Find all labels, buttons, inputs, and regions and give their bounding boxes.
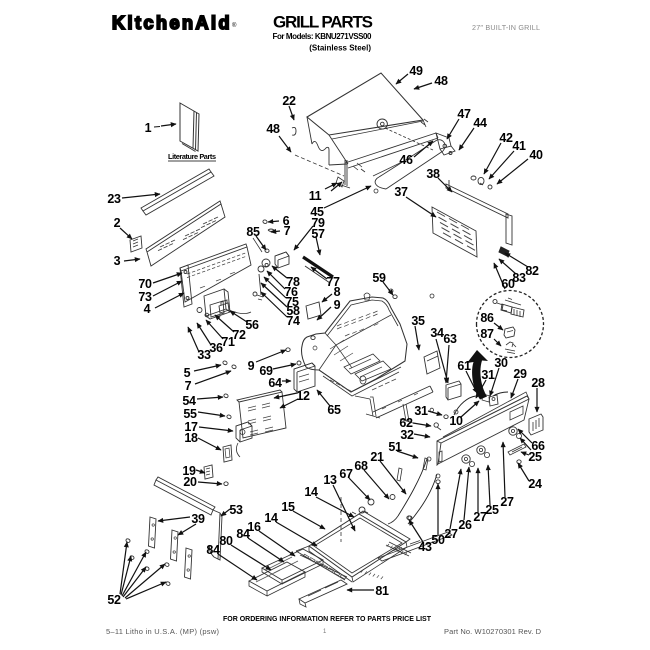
svg-text:22: 22 (282, 94, 296, 108)
svg-text:21: 21 (370, 450, 384, 464)
svg-text:48: 48 (434, 74, 448, 88)
svg-text:71: 71 (221, 335, 235, 349)
svg-text:KitchenAid: KitchenAid (112, 13, 230, 33)
svg-text:9: 9 (334, 298, 341, 312)
svg-text:43: 43 (418, 540, 432, 554)
svg-text:54: 54 (182, 394, 196, 408)
svg-text:52: 52 (107, 593, 121, 607)
svg-text:2: 2 (114, 216, 121, 230)
svg-text:GRILL PARTS: GRILL PARTS (273, 13, 373, 32)
svg-text:11: 11 (309, 189, 322, 203)
svg-text:61: 61 (457, 359, 471, 373)
svg-text:®: ® (232, 22, 237, 29)
svg-text:42: 42 (499, 131, 513, 145)
svg-text:80: 80 (219, 534, 233, 548)
svg-text:34: 34 (430, 326, 444, 340)
svg-text:3: 3 (114, 254, 121, 268)
svg-text:5–11 Litho in U.S.A. (MP) (psw: 5–11 Litho in U.S.A. (MP) (psw) (106, 627, 220, 636)
svg-text:37: 37 (394, 185, 408, 199)
svg-text:36: 36 (209, 341, 223, 355)
svg-text:55: 55 (183, 407, 197, 421)
svg-text:1: 1 (145, 121, 152, 135)
svg-text:18: 18 (184, 431, 198, 445)
svg-text:14: 14 (304, 485, 318, 499)
svg-text:74: 74 (286, 314, 300, 328)
svg-text:48: 48 (266, 122, 280, 136)
svg-text:51: 51 (388, 440, 402, 454)
svg-text:44: 44 (473, 116, 487, 130)
svg-text:56: 56 (245, 318, 259, 332)
svg-text:41: 41 (512, 139, 526, 153)
svg-text:46: 46 (399, 153, 413, 167)
svg-text:7: 7 (185, 379, 192, 393)
svg-text:27: 27 (444, 527, 458, 541)
svg-text:30: 30 (494, 356, 508, 370)
svg-text:(Stainless Steel): (Stainless Steel) (309, 44, 371, 53)
svg-text:27: 27 (473, 510, 487, 524)
svg-text:28: 28 (531, 376, 545, 390)
svg-text:84: 84 (236, 527, 250, 541)
svg-text:64: 64 (268, 376, 282, 390)
svg-text:20: 20 (183, 475, 197, 489)
svg-text:For Models: KBNU271VSS00: For Models: KBNU271VSS00 (273, 32, 373, 41)
svg-text:84: 84 (206, 543, 220, 557)
svg-text:29: 29 (513, 367, 527, 381)
svg-text:27″ BUILT-IN GRILL: 27″ BUILT-IN GRILL (472, 23, 540, 32)
svg-text:70: 70 (138, 277, 152, 291)
svg-text:81: 81 (375, 584, 389, 598)
svg-text:9: 9 (248, 359, 255, 373)
svg-text:50: 50 (431, 533, 445, 547)
svg-text:47: 47 (457, 107, 471, 121)
svg-text:27: 27 (500, 495, 514, 509)
svg-text:63: 63 (443, 332, 457, 346)
svg-text:83: 83 (512, 271, 526, 285)
svg-text:13: 13 (323, 473, 337, 487)
svg-text:31: 31 (414, 404, 428, 418)
svg-text:12: 12 (296, 389, 310, 403)
svg-text:82: 82 (525, 264, 539, 278)
svg-text:25: 25 (528, 450, 542, 464)
svg-text:68: 68 (354, 459, 368, 473)
svg-text:85: 85 (246, 225, 260, 239)
svg-text:40: 40 (529, 148, 543, 162)
svg-text:14: 14 (264, 511, 278, 525)
svg-text:57: 57 (311, 227, 325, 241)
svg-text:39: 39 (191, 512, 205, 526)
svg-text:Part No. W10270301 Rev. D: Part No. W10270301 Rev. D (444, 627, 542, 636)
svg-text:FOR ORDERING INFORMATION REFER: FOR ORDERING INFORMATION REFER TO PARTS … (223, 616, 432, 623)
svg-text:8: 8 (334, 285, 341, 299)
svg-text:26: 26 (458, 518, 472, 532)
svg-text:65: 65 (327, 403, 341, 417)
svg-text:10: 10 (449, 414, 463, 428)
svg-text:25: 25 (485, 503, 499, 517)
svg-text:35: 35 (411, 314, 425, 328)
svg-text:7: 7 (284, 224, 291, 238)
svg-text:31: 31 (481, 368, 495, 382)
svg-text:67: 67 (339, 467, 353, 481)
svg-text:53: 53 (229, 503, 243, 517)
svg-text:86: 86 (480, 311, 494, 325)
svg-text:33: 33 (197, 348, 211, 362)
svg-text:Literature Parts: Literature Parts (168, 152, 216, 161)
svg-text:59: 59 (372, 271, 386, 285)
svg-text:5: 5 (184, 366, 191, 380)
svg-text:32: 32 (400, 428, 414, 442)
svg-text:24: 24 (528, 477, 542, 491)
svg-text:15: 15 (281, 500, 295, 514)
svg-text:87: 87 (480, 327, 494, 341)
svg-text:23: 23 (107, 192, 121, 206)
svg-text:4: 4 (144, 302, 151, 316)
svg-text:49: 49 (409, 64, 423, 78)
svg-text:38: 38 (426, 167, 440, 181)
